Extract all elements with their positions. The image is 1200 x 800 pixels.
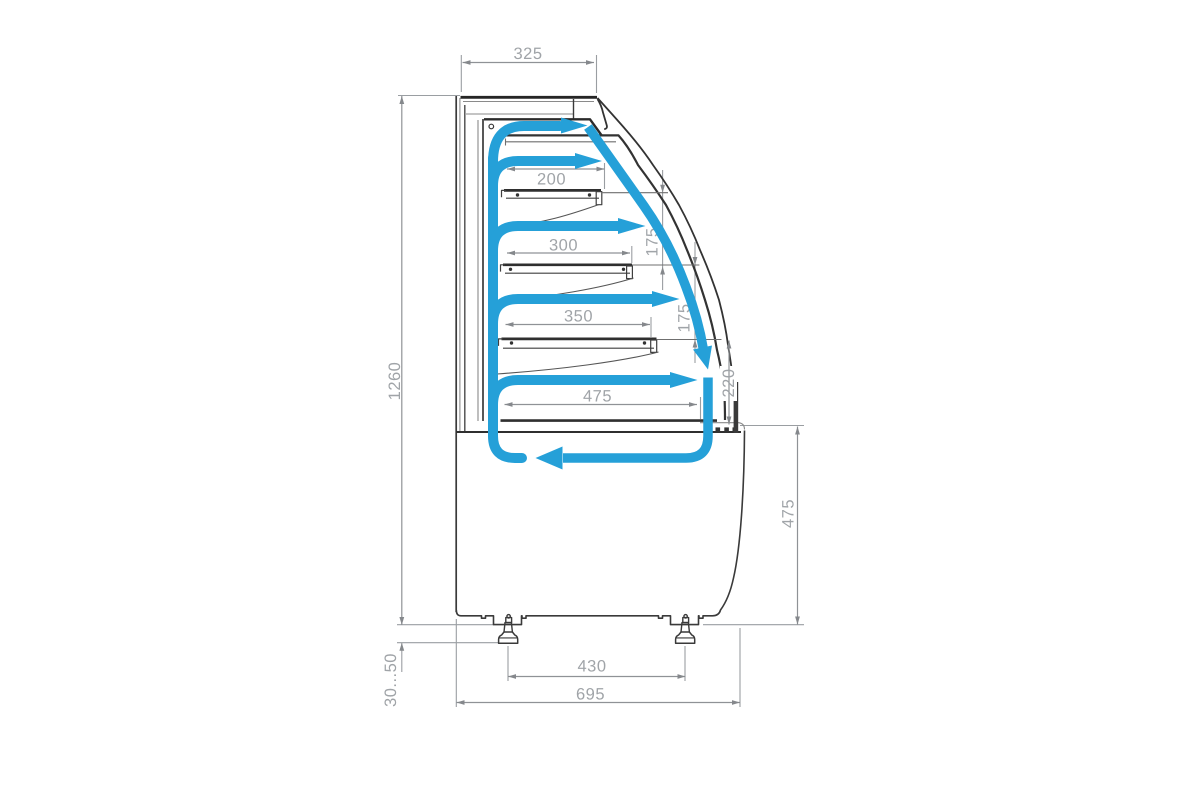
- svg-text:30...50: 30...50: [382, 653, 400, 707]
- svg-text:475: 475: [780, 499, 798, 528]
- svg-text:350: 350: [564, 308, 593, 326]
- svg-text:300: 300: [549, 237, 578, 255]
- svg-text:1260: 1260: [386, 362, 404, 401]
- svg-text:430: 430: [577, 658, 606, 676]
- svg-text:475: 475: [583, 388, 612, 406]
- svg-text:325: 325: [513, 45, 542, 63]
- svg-text:220: 220: [720, 368, 738, 397]
- svg-text:695: 695: [576, 686, 605, 704]
- svg-text:200: 200: [537, 171, 566, 189]
